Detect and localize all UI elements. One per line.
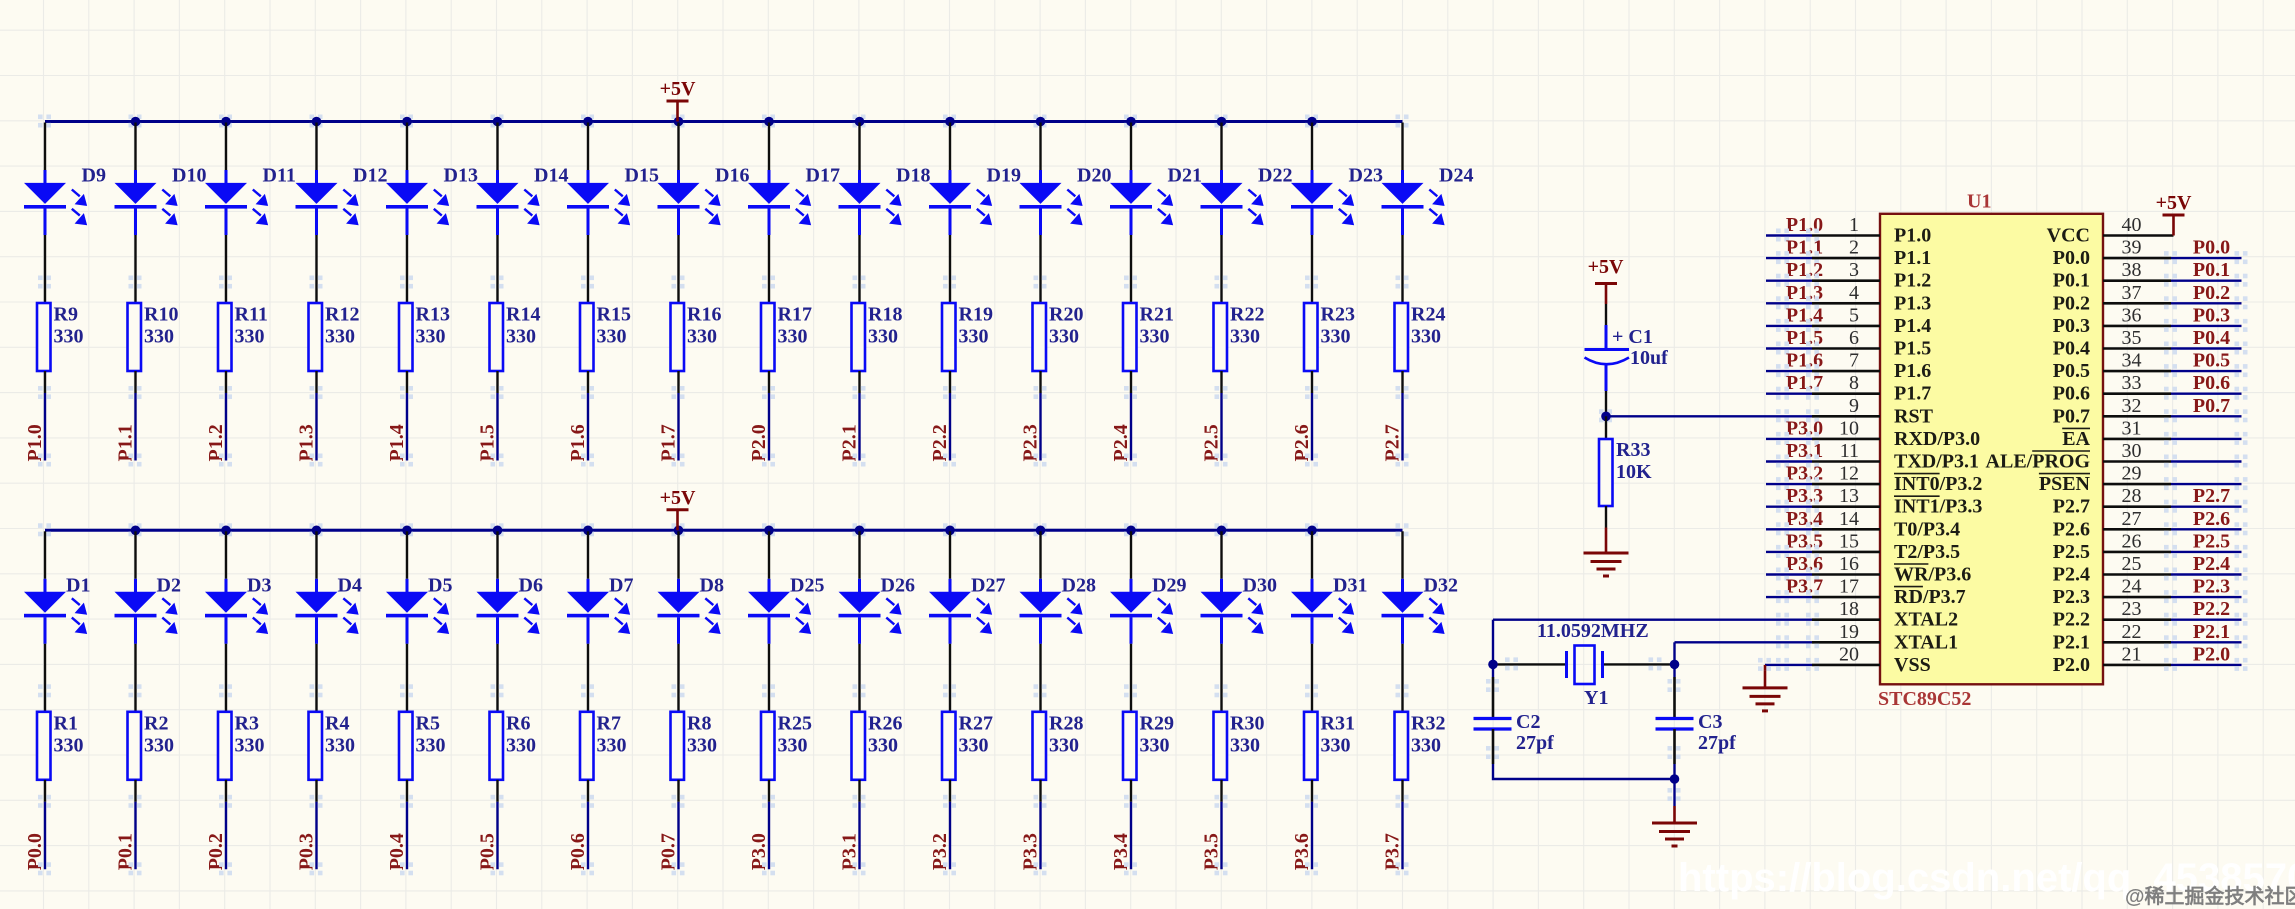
svg-text:D13: D13 [444,165,478,187]
svg-text:330: 330 [325,734,355,756]
svg-text:P2.4: P2.4 [2193,553,2230,575]
svg-text:ALE/PROG: ALE/PROG [1986,451,2091,473]
svg-text:13: 13 [1839,485,1859,507]
svg-text:RST: RST [1894,405,1934,427]
svg-text:P2.0: P2.0 [2193,643,2230,665]
svg-text:R15: R15 [597,304,631,326]
svg-text:P1.3: P1.3 [296,424,318,461]
svg-text:D9: D9 [82,165,106,187]
svg-text:P2.3: P2.3 [2053,586,2090,608]
svg-text:D14: D14 [534,165,568,187]
svg-text:D20: D20 [1077,165,1111,187]
svg-text:34: 34 [2122,350,2142,372]
svg-text:D29: D29 [1152,574,1186,596]
svg-text:P3.0: P3.0 [748,833,770,870]
svg-text:P0.0: P0.0 [2193,237,2230,259]
svg-text:330: 330 [506,734,536,756]
svg-text:5: 5 [1849,304,1859,326]
svg-text:R12: R12 [325,304,359,326]
svg-text:330: 330 [235,734,265,756]
svg-text:330: 330 [54,734,84,756]
svg-text:D16: D16 [715,165,749,187]
svg-text:P2.3: P2.3 [2193,576,2230,598]
svg-text:R28: R28 [1049,712,1083,734]
svg-text:R10: R10 [144,304,178,326]
svg-text:27: 27 [2122,508,2142,530]
svg-text:R27: R27 [959,712,993,734]
svg-text:14: 14 [1839,508,1859,530]
svg-text:27pf: 27pf [1698,732,1736,754]
svg-text:R17: R17 [778,304,812,326]
svg-text:330: 330 [1230,734,1260,756]
svg-text:D5: D5 [428,574,452,596]
svg-text:+5V: +5V [2156,192,2192,214]
svg-text:R31: R31 [1321,712,1355,734]
svg-text:P1.7: P1.7 [658,424,680,461]
svg-text:P1.2: P1.2 [1894,270,1931,292]
svg-text:D32: D32 [1424,574,1458,596]
svg-text:P1.7: P1.7 [1894,383,1931,405]
svg-text:P0.1: P0.1 [2193,259,2230,281]
svg-text:R26: R26 [868,712,902,734]
svg-text:P2.5: P2.5 [1201,424,1223,461]
svg-text:P2.2: P2.2 [929,424,951,461]
svg-text:P2.6: P2.6 [2053,518,2090,540]
svg-text:P1.4: P1.4 [1894,315,1931,337]
svg-text:P0.7: P0.7 [2193,395,2230,417]
svg-text:R19: R19 [959,304,993,326]
svg-text:R11: R11 [235,304,268,326]
svg-text:D19: D19 [987,165,1021,187]
svg-text:INT0/P3.2: INT0/P3.2 [1894,473,1982,495]
svg-text:T0/P3.4: T0/P3.4 [1894,518,1960,540]
svg-text:R16: R16 [687,304,721,326]
svg-text:XTAL1: XTAL1 [1894,631,1958,653]
svg-text:R23: R23 [1321,304,1355,326]
svg-text:27pf: 27pf [1516,732,1554,754]
svg-text:P1.3: P1.3 [1894,292,1931,314]
svg-text:P2.7: P2.7 [2053,496,2090,518]
svg-text:P2.2: P2.2 [2193,598,2230,620]
svg-text:330: 330 [778,326,808,348]
svg-text:10uf: 10uf [1630,347,1668,369]
svg-text:D3: D3 [247,574,271,596]
svg-text:P2.1: P2.1 [2193,621,2230,643]
svg-text:D24: D24 [1439,165,1473,187]
svg-text:330: 330 [416,734,446,756]
svg-text:D2: D2 [157,574,181,596]
svg-text:R22: R22 [1230,304,1264,326]
svg-text:330: 330 [1049,734,1079,756]
svg-text:P0.3: P0.3 [296,833,318,870]
svg-text:P2.4: P2.4 [1110,424,1132,461]
svg-text:R8: R8 [687,712,711,734]
svg-text:P3.1: P3.1 [839,833,861,870]
svg-text:D6: D6 [519,574,543,596]
svg-text:P0.5: P0.5 [477,833,499,870]
svg-text:P3.2: P3.2 [929,833,951,870]
svg-text:P0.4: P0.4 [2053,338,2090,360]
svg-text:330: 330 [778,734,808,756]
svg-text:330: 330 [1321,326,1351,348]
svg-text:R9: R9 [54,304,78,326]
svg-text:20: 20 [1839,643,1859,665]
svg-text:P0.7: P0.7 [2053,405,2090,427]
svg-text:C2: C2 [1516,711,1540,733]
svg-text:P0.3: P0.3 [2193,304,2230,326]
svg-text:330: 330 [868,326,898,348]
svg-text:+5V: +5V [1588,256,1624,278]
svg-text:D10: D10 [172,165,206,187]
svg-text:10K: 10K [1616,461,1652,483]
svg-text:P2.1: P2.1 [839,424,861,461]
svg-text:12: 12 [1839,463,1859,485]
svg-text:38: 38 [2122,259,2142,281]
svg-text:P0.0: P0.0 [24,833,46,870]
svg-text:3: 3 [1849,259,1859,281]
svg-text:32: 32 [2122,395,2142,417]
svg-text:R33: R33 [1616,439,1650,461]
svg-text:330: 330 [1140,326,1170,348]
svg-text:R25: R25 [778,712,812,734]
svg-text:WR/P3.6: WR/P3.6 [1894,564,1971,586]
svg-text:D4: D4 [338,574,362,596]
svg-text:P0.6: P0.6 [567,833,589,870]
svg-text:P2.3: P2.3 [1020,424,1042,461]
svg-text:330: 330 [144,326,174,348]
svg-text:P0.5: P0.5 [2053,360,2090,382]
svg-text:26: 26 [2122,530,2142,552]
svg-text:37: 37 [2122,282,2142,304]
svg-text:29: 29 [2122,463,2142,485]
svg-text:P1.4: P1.4 [386,424,408,461]
svg-text:P2.1: P2.1 [2053,631,2090,653]
svg-text:P0.1: P0.1 [115,833,137,870]
svg-text:P0.6: P0.6 [2053,383,2090,405]
svg-text:P0.0: P0.0 [2053,247,2090,269]
svg-text:P1.5: P1.5 [477,424,499,461]
svg-text:R29: R29 [1140,712,1174,734]
svg-text:P0.7: P0.7 [658,833,680,870]
svg-text:330: 330 [1411,734,1441,756]
svg-text:XTAL2: XTAL2 [1894,609,1958,631]
svg-text:U1: U1 [1967,191,1991,213]
svg-text:D18: D18 [896,165,930,187]
svg-text:Y1: Y1 [1584,687,1608,709]
svg-text:P2.0: P2.0 [2053,654,2090,676]
svg-text:P3.7: P3.7 [1382,833,1404,870]
svg-text:39: 39 [2122,237,2142,259]
svg-text:D23: D23 [1349,165,1383,187]
svg-text:D7: D7 [609,574,633,596]
svg-text:330: 330 [1411,326,1441,348]
svg-text:P0.2: P0.2 [2053,292,2090,314]
svg-text:D28: D28 [1062,574,1096,596]
svg-text:40: 40 [2122,214,2142,236]
svg-text:330: 330 [687,734,717,756]
svg-text:P1.6: P1.6 [567,424,589,461]
svg-text:R4: R4 [325,712,349,734]
svg-text:P2.5: P2.5 [2193,530,2230,552]
svg-text:R32: R32 [1411,712,1445,734]
svg-text:D25: D25 [790,574,824,596]
svg-text:P0.1: P0.1 [2053,270,2090,292]
svg-text:D27: D27 [971,574,1005,596]
svg-text:31: 31 [2122,417,2142,439]
svg-text:330: 330 [506,326,536,348]
svg-text:+5V: +5V [660,487,696,509]
svg-text:P2.7: P2.7 [1382,424,1404,461]
svg-text:18: 18 [1839,598,1859,620]
svg-text:P0.5: P0.5 [2193,350,2230,372]
svg-text:R20: R20 [1049,304,1083,326]
svg-text:330: 330 [144,734,174,756]
svg-text:D11: D11 [263,165,296,187]
svg-text:R5: R5 [416,712,440,734]
svg-text:P1.1: P1.1 [1894,247,1931,269]
svg-text:P0.2: P0.2 [2193,282,2230,304]
svg-text:R1: R1 [54,712,78,734]
svg-text:1: 1 [1849,214,1859,236]
svg-text:D21: D21 [1168,165,1202,187]
svg-text:P0.4: P0.4 [2193,327,2230,349]
svg-text:330: 330 [416,326,446,348]
svg-text:P2.7: P2.7 [2193,485,2230,507]
svg-text:R21: R21 [1140,304,1174,326]
svg-text:T2/P3.5: T2/P3.5 [1894,541,1960,563]
svg-text:D22: D22 [1258,165,1292,187]
svg-text:P2.6: P2.6 [2193,508,2230,530]
svg-text:P1.0: P1.0 [24,424,46,461]
svg-text:330: 330 [1140,734,1170,756]
svg-text:R13: R13 [416,304,450,326]
svg-text:EA: EA [2062,428,2090,450]
svg-text:330: 330 [235,326,265,348]
svg-text:R18: R18 [868,304,902,326]
svg-text:330: 330 [54,326,84,348]
svg-text:36: 36 [2122,304,2142,326]
svg-text:R6: R6 [506,712,530,734]
svg-text:4: 4 [1849,282,1859,304]
svg-text:24: 24 [2122,576,2142,598]
svg-text:17: 17 [1839,576,1859,598]
svg-text:D15: D15 [625,165,659,187]
svg-text:P1.5: P1.5 [1894,338,1931,360]
svg-text:9: 9 [1849,395,1859,417]
svg-text:PSEN: PSEN [2039,473,2091,495]
svg-text:330: 330 [597,326,627,348]
svg-text:330: 330 [959,734,989,756]
svg-text:P1.6: P1.6 [1894,360,1931,382]
svg-text:VSS: VSS [1894,654,1931,676]
svg-text:330: 330 [868,734,898,756]
svg-text:P3.4: P3.4 [1110,833,1132,870]
svg-text:21: 21 [2122,643,2142,665]
svg-text:R24: R24 [1411,304,1445,326]
svg-text:P2.0: P2.0 [748,424,770,461]
svg-text:330: 330 [687,326,717,348]
svg-text:D17: D17 [806,165,840,187]
svg-text:330: 330 [1049,326,1079,348]
svg-text:INT1/P3.3: INT1/P3.3 [1894,496,1982,518]
svg-text:D26: D26 [881,574,915,596]
svg-text:30: 30 [2122,440,2142,462]
svg-text:STC89C52: STC89C52 [1878,688,1971,710]
svg-text:15: 15 [1839,530,1859,552]
svg-text:8: 8 [1849,372,1859,394]
svg-text:D12: D12 [353,165,387,187]
svg-text:@稀土掘金技术社区: @稀土掘金技术社区 [2125,884,2295,908]
svg-text:R7: R7 [597,712,621,734]
svg-text:10: 10 [1839,417,1859,439]
svg-text:330: 330 [597,734,627,756]
svg-text:P0.2: P0.2 [205,833,227,870]
svg-text:P0.3: P0.3 [2053,315,2090,337]
svg-text:16: 16 [1839,553,1859,575]
svg-text:35: 35 [2122,327,2142,349]
svg-text:C3: C3 [1698,711,1722,733]
svg-text:D30: D30 [1243,574,1277,596]
svg-text:D1: D1 [66,574,90,596]
svg-text:P1.2: P1.2 [205,424,227,461]
svg-text:P1.0: P1.0 [1894,225,1931,247]
svg-text:P2.6: P2.6 [1291,424,1313,461]
svg-text:P0.4: P0.4 [386,833,408,870]
svg-text:RXD/P3.0: RXD/P3.0 [1894,428,1980,450]
svg-text:R2: R2 [144,712,168,734]
svg-text:33: 33 [2122,372,2142,394]
svg-text:R3: R3 [235,712,259,734]
svg-text:P3.6: P3.6 [1291,833,1313,870]
svg-text:D31: D31 [1333,574,1367,596]
svg-text:P2.2: P2.2 [2053,609,2090,631]
svg-text:P1.1: P1.1 [115,424,137,461]
svg-text:6: 6 [1849,327,1859,349]
svg-text:R30: R30 [1230,712,1264,734]
svg-text:25: 25 [2122,553,2142,575]
svg-text:TXD/P3.1: TXD/P3.1 [1894,451,1979,473]
svg-text:VCC: VCC [2047,225,2090,247]
svg-text:R14: R14 [506,304,540,326]
svg-text:RD/P3.7: RD/P3.7 [1894,586,1966,608]
svg-text:D8: D8 [700,574,724,596]
svg-text:330: 330 [1230,326,1260,348]
svg-text:330: 330 [325,326,355,348]
svg-text:P3.5: P3.5 [1201,833,1223,870]
svg-text:11: 11 [1840,440,1859,462]
svg-text:P3.3: P3.3 [1020,833,1042,870]
svg-text:P0.6: P0.6 [2193,372,2230,394]
svg-text:2: 2 [1849,237,1859,259]
svg-text:P2.4: P2.4 [2053,564,2090,586]
svg-text:330: 330 [959,326,989,348]
svg-text:19: 19 [1839,621,1859,643]
svg-text:+5V: +5V [660,78,696,100]
svg-text:11.0592MHZ: 11.0592MHZ [1537,620,1649,642]
svg-text:23: 23 [2122,598,2142,620]
svg-text:28: 28 [2122,485,2142,507]
svg-text:22: 22 [2122,621,2142,643]
svg-text:+ C1: + C1 [1612,326,1653,348]
svg-text:330: 330 [1321,734,1351,756]
svg-text:7: 7 [1849,350,1859,372]
svg-text:P2.5: P2.5 [2053,541,2090,563]
